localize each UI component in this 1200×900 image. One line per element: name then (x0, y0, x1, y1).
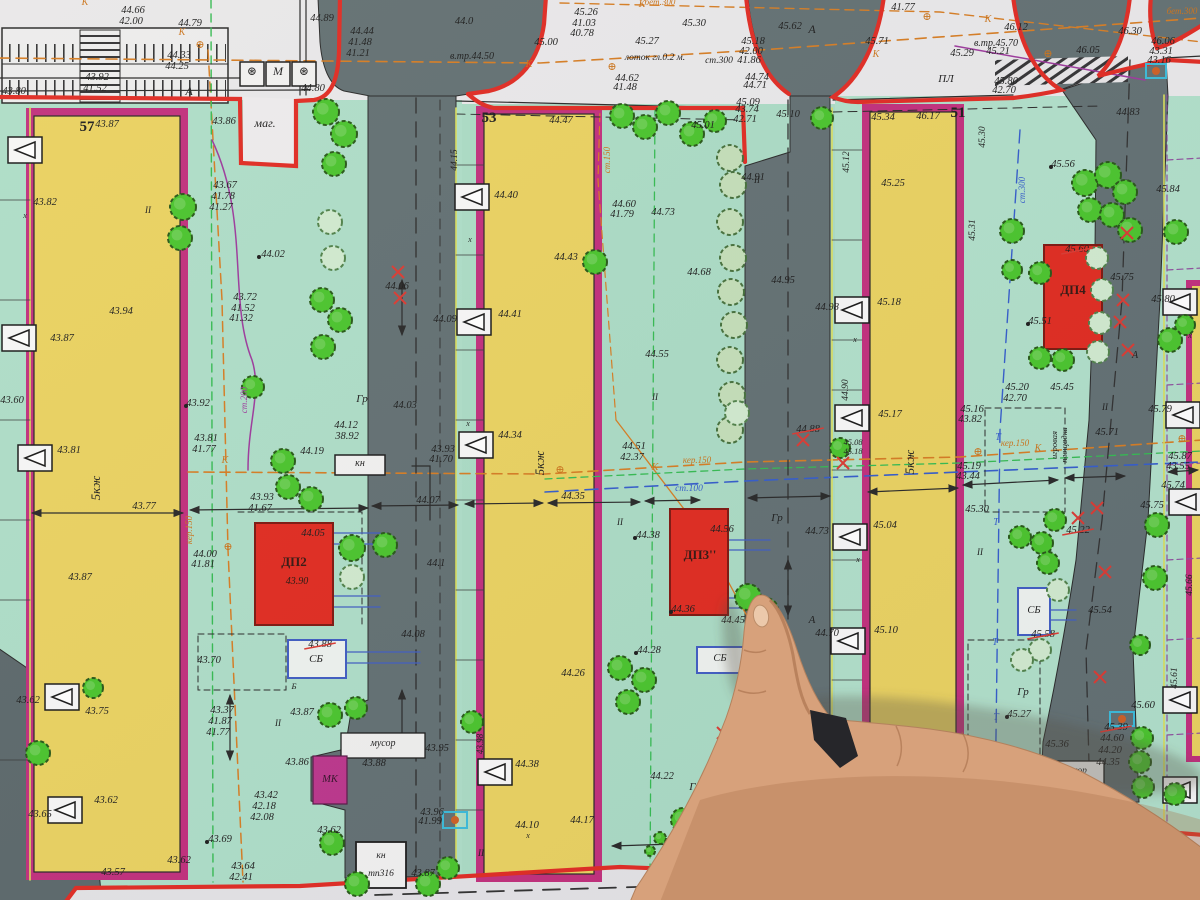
site-plan-canvas: 44.6642.0044.7944.3344.2543.9241.5243.80… (0, 0, 1200, 900)
site-plan-photo: 44.6642.0044.7944.3344.2543.9241.5243.80… (0, 0, 1200, 900)
